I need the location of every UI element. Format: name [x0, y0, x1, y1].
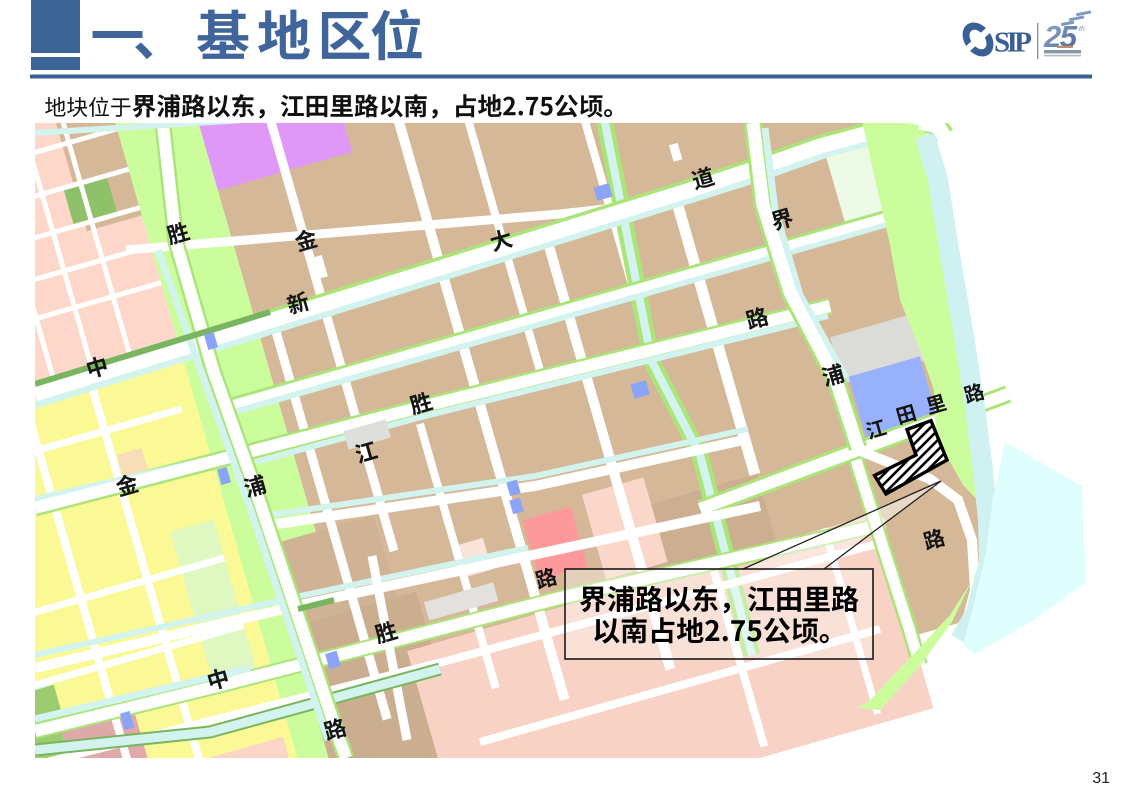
svg-text:31: 31	[1092, 770, 1110, 787]
svg-text:SIP: SIP	[994, 27, 1032, 59]
svg-text:25: 25	[1043, 19, 1078, 54]
svg-text:th: th	[1079, 26, 1085, 33]
